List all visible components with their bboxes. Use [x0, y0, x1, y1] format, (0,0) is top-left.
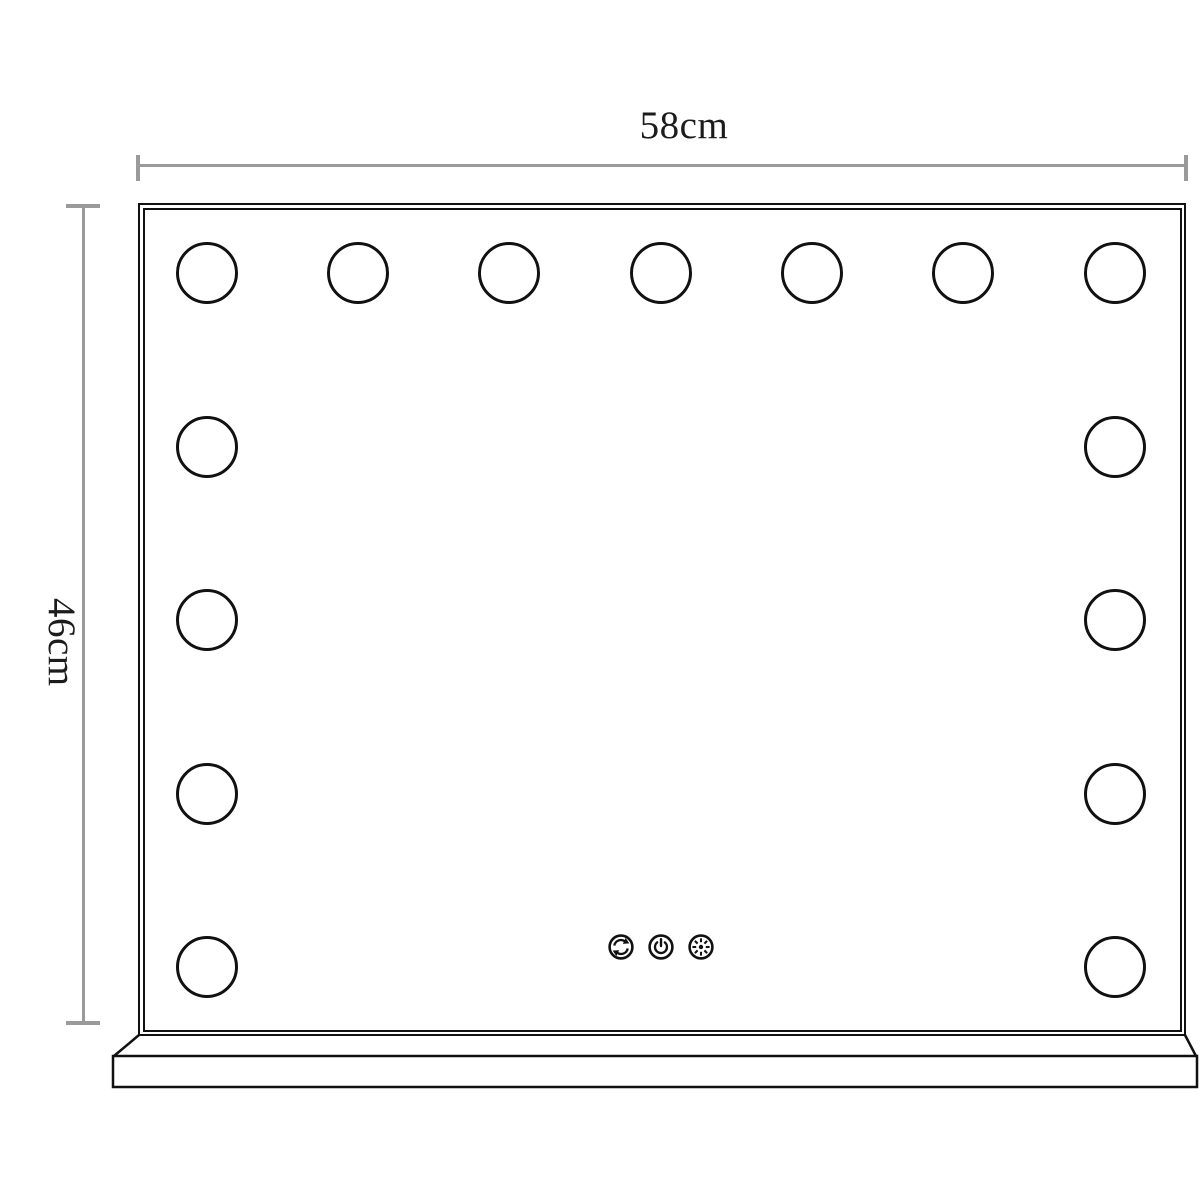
power-icon: [647, 933, 675, 961]
height-dimension-line: [82, 206, 85, 1025]
height-dimension-tick-top: [66, 204, 100, 208]
bulb: [1084, 936, 1146, 998]
product-dimension-diagram: 58cm 46cm: [0, 0, 1200, 1200]
auto-cycle-icon: [607, 933, 635, 961]
width-dimension-line: [138, 164, 1187, 167]
bulb: [1084, 416, 1146, 478]
brightness-icon: [687, 933, 715, 961]
width-dimension-tick-right: [1184, 155, 1188, 181]
bulb: [630, 242, 692, 304]
width-dimension-label: 58cm: [484, 103, 884, 148]
bulb: [176, 763, 238, 825]
bulb: [932, 242, 994, 304]
bulb: [176, 242, 238, 304]
bulb: [478, 242, 540, 304]
bulb: [176, 936, 238, 998]
mirror-base: [0, 1028, 1200, 1098]
mirror-frame: [138, 203, 1186, 1036]
bulb: [176, 416, 238, 478]
bulb: [1084, 242, 1146, 304]
mirror-inner-frame: [143, 208, 1182, 1032]
bulb: [176, 589, 238, 651]
bulb: [327, 242, 389, 304]
bulb: [1084, 589, 1146, 651]
height-dimension-tick-bottom: [66, 1021, 100, 1025]
bulb: [781, 242, 843, 304]
bulb: [1084, 763, 1146, 825]
width-dimension-tick-left: [136, 155, 140, 181]
height-dimension-label: 46cm: [39, 598, 84, 687]
